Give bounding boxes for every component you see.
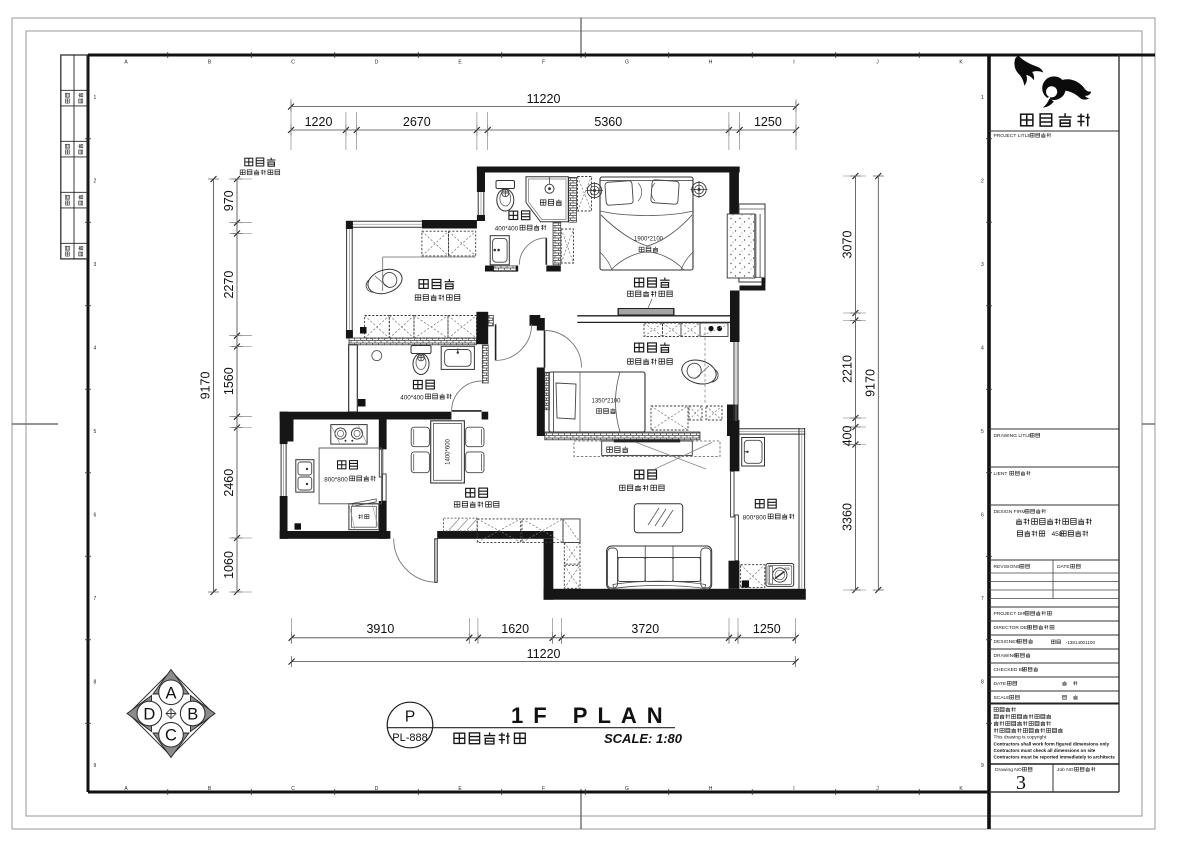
svg-text:5: 5: [981, 429, 984, 435]
svg-text:LIENT: LIENT: [994, 471, 1008, 477]
svg-text:DIRECTOR DER: DIRECTOR DER: [994, 625, 1032, 631]
svg-text:F: F: [542, 786, 545, 792]
svg-text:4: 4: [981, 346, 984, 352]
svg-text:REVISIONS: REVISIONS: [994, 564, 1021, 570]
svg-text:1560: 1560: [222, 367, 236, 395]
svg-text:D: D: [143, 706, 155, 724]
svg-text:7: 7: [94, 596, 97, 602]
svg-text:11220: 11220: [527, 92, 561, 106]
svg-text:G: G: [625, 60, 629, 66]
svg-text:I: I: [793, 786, 794, 792]
svg-text:1060: 1060: [222, 551, 236, 579]
svg-text:5: 5: [94, 429, 97, 435]
svg-text:2: 2: [981, 179, 984, 185]
svg-text:CHECKED BY: CHECKED BY: [994, 667, 1027, 673]
svg-text:1F PLAN: 1F PLAN: [511, 703, 673, 728]
svg-text:3910: 3910: [366, 622, 394, 636]
svg-text:1250: 1250: [754, 115, 782, 129]
svg-text:2460: 2460: [222, 469, 236, 497]
svg-text:DRAWING: DRAWING: [994, 653, 1018, 659]
svg-text:1350*2100: 1350*2100: [591, 399, 621, 405]
svg-text:2210: 2210: [840, 355, 854, 383]
svg-text:1220: 1220: [305, 115, 333, 129]
svg-text:Contractors must check all dim: Contractors must check all dimensions on…: [994, 748, 1096, 753]
svg-text:3: 3: [1016, 772, 1026, 794]
svg-text:7: 7: [981, 596, 984, 602]
svg-text:9: 9: [981, 763, 984, 769]
svg-text:P: P: [405, 709, 415, 726]
svg-text:2270: 2270: [222, 271, 236, 299]
svg-text:DESIGN FIRM: DESIGN FIRM: [994, 509, 1026, 515]
svg-text:1: 1: [981, 95, 984, 101]
svg-text:11220: 11220: [527, 647, 561, 661]
svg-text:3070: 3070: [840, 231, 854, 259]
svg-text:1: 1: [94, 95, 97, 101]
svg-text:2: 2: [94, 179, 97, 185]
svg-text:800*800: 800*800: [743, 514, 767, 521]
svg-text:3: 3: [94, 262, 97, 268]
svg-text:Contractors must be reported i: Contractors must be reported immediately…: [994, 755, 1116, 760]
svg-text:6: 6: [94, 513, 97, 519]
svg-text:H: H: [709, 60, 713, 66]
svg-text:2670: 2670: [403, 115, 431, 129]
svg-text:Job NO: Job NO: [1057, 767, 1074, 773]
svg-text:A: A: [165, 684, 176, 702]
svg-text:9: 9: [94, 763, 97, 769]
svg-text:-13814001100: -13814001100: [1066, 640, 1096, 645]
svg-text:400*400: 400*400: [400, 394, 424, 401]
svg-text:970: 970: [222, 190, 236, 211]
svg-text:D: D: [375, 786, 379, 792]
svg-text:I: I: [793, 60, 794, 66]
svg-text:458: 458: [1052, 531, 1063, 538]
svg-text:4: 4: [94, 346, 97, 352]
svg-text:3: 3: [981, 262, 984, 268]
svg-text:B: B: [187, 706, 198, 724]
svg-text:C: C: [165, 727, 177, 745]
svg-text:1400*600: 1400*600: [446, 438, 452, 464]
svg-text:G: G: [625, 786, 629, 792]
svg-text:SCALE: 1:80: SCALE: 1:80: [604, 731, 683, 746]
svg-text:Contractors shall work form fi: Contractors shall work form figured dime…: [994, 742, 1110, 747]
svg-text:800*800: 800*800: [324, 476, 348, 483]
svg-text:PL-888: PL-888: [392, 732, 427, 744]
svg-text:C: C: [291, 60, 295, 66]
svg-text:1620: 1620: [501, 622, 529, 636]
svg-text:400*400: 400*400: [495, 226, 519, 233]
svg-text:DESIGNER: DESIGNER: [994, 639, 1020, 645]
svg-text:F: F: [542, 60, 545, 66]
svg-text:DATE: DATE: [1057, 564, 1070, 570]
svg-text:9170: 9170: [199, 372, 213, 400]
svg-text:SCALE: SCALE: [994, 695, 1011, 701]
svg-text:PROJECT DIR: PROJECT DIR: [994, 611, 1027, 617]
svg-text:H: H: [709, 786, 713, 792]
svg-text:1900*2100: 1900*2100: [634, 237, 664, 243]
svg-text:DRAWING LITLE: DRAWING LITLE: [994, 433, 1033, 439]
svg-text:1250: 1250: [753, 622, 781, 636]
svg-text:5360: 5360: [594, 115, 622, 129]
svg-text:PROJECT LITLE: PROJECT LITLE: [994, 133, 1032, 139]
svg-text:This drawing is copyright: This drawing is copyright: [994, 735, 1047, 741]
svg-text:400: 400: [840, 426, 854, 447]
svg-text:C: C: [291, 786, 295, 792]
svg-text:3720: 3720: [631, 622, 659, 636]
svg-text:8: 8: [981, 680, 984, 686]
svg-text:3360: 3360: [840, 503, 854, 531]
svg-text:6: 6: [981, 513, 984, 519]
svg-text:D: D: [375, 60, 379, 66]
svg-text:9170: 9170: [863, 369, 877, 397]
svg-text:DATE: DATE: [994, 681, 1007, 687]
svg-text:888: 888: [784, 567, 790, 571]
svg-text:8: 8: [94, 680, 97, 686]
